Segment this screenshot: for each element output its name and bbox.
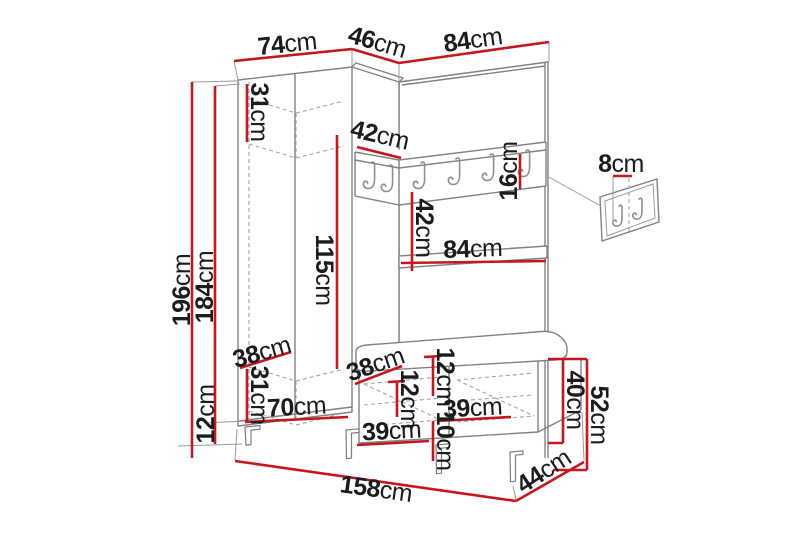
- dim-label-bench-total-height: 52cm: [585, 385, 613, 444]
- dim-label-hook-rail-height: 16cm: [495, 141, 523, 200]
- dim-label-bench-bottom-clearance: 10cm: [431, 411, 459, 470]
- furniture-dimension-diagram: 74cm 46cm 84cm 31cm 42cm 16cm 8cm 196cm …: [0, 0, 800, 533]
- dim-label-bench-body-height: 40cm: [561, 370, 589, 429]
- dim-label-top-compartment-height: 31cm: [245, 82, 273, 141]
- dim-label-wardrobe-interior-width: 70cm: [266, 391, 327, 422]
- dim-label-bench-left-compartment-width: 39cm: [361, 415, 422, 446]
- dim-label-hanging-space-height: 115cm: [310, 234, 338, 305]
- dim-label-wall-panel-depth: 8cm: [598, 150, 644, 178]
- dim-label-shelf-width: 84cm: [443, 234, 503, 264]
- dimension-diagram-page: 74cm 46cm 84cm 31cm 42cm 16cm 8cm 196cm …: [0, 0, 800, 533]
- dim-label-carcass-height: 184cm: [191, 251, 219, 324]
- dim-label-leg-height: 12cm: [192, 384, 220, 443]
- dim-label-rail-to-shelf-gap: 42cm: [410, 198, 438, 257]
